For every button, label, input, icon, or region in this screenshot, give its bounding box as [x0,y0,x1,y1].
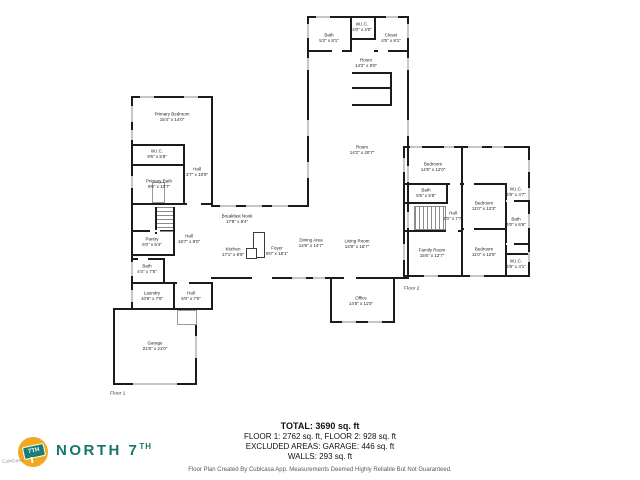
window [307,162,309,178]
wall [352,87,392,89]
window [410,146,422,148]
window [195,336,197,358]
wall [113,308,133,310]
kitchen-counter [246,248,257,259]
room-label-bath-2b: Bath4'0" x 6'6" [506,216,526,227]
window [492,146,504,148]
room-label-bath-top: Bath5'2" x 8'1" [319,32,339,43]
window [140,96,154,98]
door-opening [150,230,160,232]
room-label-bedroom-2c: Bedroom11'0" x 12'5" [472,246,496,257]
room-label-hall-2: Hall4'0" x 7'7" [443,210,463,221]
room-label-bedroom-2a: Bedroom14'8" x 12'0" [421,161,446,172]
door-opening [464,183,474,185]
wall [173,230,175,256]
wall [173,284,175,310]
room-label-wic-primary: W.I.C.9'6" x 5'8" [147,148,167,159]
room-label-pantry: Pantry6'0" x 5'4" [142,236,162,247]
wall [403,275,530,277]
door-opening [344,277,356,279]
window [403,158,405,172]
room-label-dining-area: Dining Area14'8" x 14'7" [299,237,324,248]
room-label-bath-1: Bath4'4" x 7'6" [137,263,157,274]
wall [131,282,213,284]
room-label-hall-main: Hall16'7" x 8'0" [178,233,200,244]
door-opening [332,50,342,52]
room-label-primary-bedroom: Primary Bedroom15'4" x 14'0" [155,111,190,122]
window [528,214,530,228]
window [386,16,398,18]
room-label-bedroom-2b: Bedroom11'0" x 12'3" [472,200,496,211]
window [528,188,530,200]
wall [390,72,392,106]
wall [352,72,392,74]
door-opening [506,200,514,202]
window [407,120,409,136]
window [131,130,133,140]
wall [131,164,185,166]
window [403,244,405,260]
window [468,146,482,148]
room-label-hall-suite: Hall3'7" x 10'9" [186,166,208,177]
wall [307,50,352,52]
room-label-garage: Garage21'8" x 21'0" [143,340,168,351]
floor-areas: FLOOR 1: 2762 sq. ft, FLOOR 2: 928 sq. f… [0,432,640,441]
door-opening [450,183,460,185]
door-opening [378,50,388,52]
wall [131,308,213,310]
window [131,262,133,276]
wall [352,104,392,106]
floor2-tag: Floor 2 [404,285,419,291]
wall [403,146,530,148]
door-opening [252,277,272,279]
window [407,212,409,228]
door-opening [187,203,201,205]
window [184,96,198,98]
room-label-hall-mud: Hall5'0" x 7'0" [181,290,201,301]
room-label-wic-2b: W.I.C.4'8" x 4'1" [506,258,526,269]
window [528,160,530,172]
wall [131,258,165,260]
room-label-living-room: Living Room14'8" x 16'7" [345,238,370,249]
room-label-wic-top: W.I.C.4'0" x 4'0" [352,21,372,32]
door-opening [446,230,458,232]
wordmark-suffix: TH [139,442,152,451]
room-label-kitchen: Kitchen17'1" x 8'9" [222,246,244,257]
window [368,321,382,323]
wall [505,253,530,255]
garage-closet-outline [177,310,197,325]
window [307,24,309,38]
floor1-tag: Floor 1 [110,390,125,396]
disclaimer: Floor Plan Created By Cubicasa App. Meas… [0,467,640,473]
window [407,166,409,182]
wall [374,16,376,40]
window [131,106,133,122]
stairs-floor2 [414,206,446,230]
wall [183,144,185,205]
window [220,205,236,207]
window [444,146,454,148]
room-label-room-big: Room14'2" x 20'7" [350,144,375,155]
window [407,58,409,70]
room-label-wic-2a: W.I.C.4'8" x 4'7" [506,186,526,197]
room-label-bath-2a: Bath5'5" x 5'8" [416,187,436,198]
door-opening [177,282,189,284]
garage-door [133,383,177,385]
window [313,277,325,279]
wall [330,277,332,323]
wall [113,308,115,385]
wall [211,282,213,310]
window [424,275,438,277]
window [316,16,330,18]
wall [461,146,463,185]
wall [211,96,213,207]
wall [403,202,448,204]
room-label-breakfast-nook: Breakfast Nook17'8" x 8'4" [222,213,253,224]
wall [163,258,165,284]
window [246,205,262,207]
window [407,24,409,38]
room-label-foyer: Foyer8'0" x 18'1" [266,245,288,256]
total-area: TOTAL: 3690 sq. ft [0,421,640,431]
wall [393,277,395,323]
window [342,321,356,323]
window [307,58,309,70]
window [272,205,288,207]
window [131,176,133,188]
window [292,277,306,279]
room-label-family-room: Family Room15'6" x 12'7" [419,247,445,258]
brand-wordmark: NORTH 7TH [56,442,152,459]
window [131,290,133,302]
wall [131,144,185,146]
window [528,252,530,262]
wall [131,254,175,256]
room-label-primary-bath: Primary Bath9'6" x 10'7" [146,178,172,189]
door-opening [506,243,514,245]
door-opening [464,228,474,230]
window [470,275,484,277]
door-opening [138,258,148,260]
wall [211,277,409,279]
window [307,120,309,136]
room-label-laundry: Laundry10'6" x 7'6" [141,290,163,301]
room-label-closet-top: Closet4'6" x 8'1" [381,32,401,43]
room-label-office: Office14'6" x 11'0" [349,295,373,306]
wall [350,38,376,40]
wall [307,16,309,207]
wall [330,321,395,323]
room-label-room-mid: Room14'2" x 9'0" [355,57,377,68]
